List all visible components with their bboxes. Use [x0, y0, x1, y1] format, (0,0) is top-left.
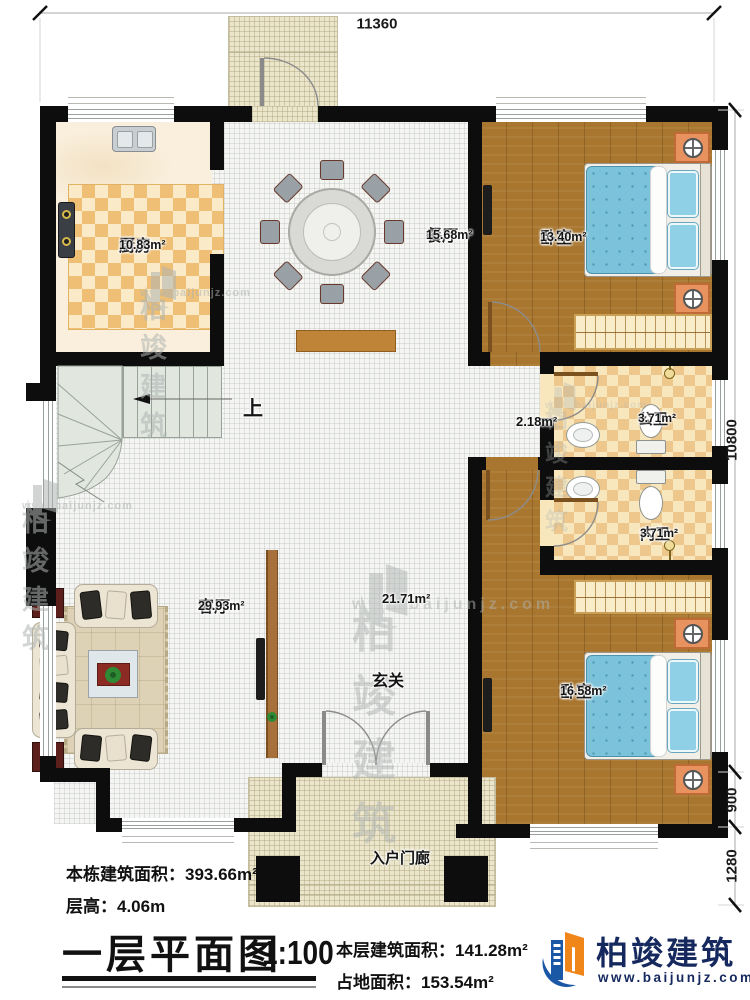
dimension-right-mid: 900 [724, 787, 741, 812]
dimension-right-main: 10800 [724, 419, 741, 461]
brand-logo-icon [536, 928, 590, 988]
title-underline [62, 976, 316, 981]
brand-logo: 柏竣建筑 www.baijunjz.com [536, 926, 736, 992]
total-building-area: 本栋建筑面积：393.66m² [66, 860, 258, 885]
title-underline-thin [62, 986, 316, 988]
brand-website: www.baijunjz.com [598, 970, 750, 985]
plan-title: 一层平面图 [62, 922, 282, 980]
floor-height: 层高：4.06m [66, 892, 165, 917]
dimension-right-bottom: 1280 [724, 849, 741, 882]
plan-scale: 1:100 [262, 934, 334, 972]
footprint-area: 占地面积：153.54m² [336, 968, 494, 993]
floor-area: 本层建筑面积：141.28m² [336, 936, 528, 961]
brand-name: 柏竣建筑 [596, 928, 736, 974]
floor-plan: 柏竣建筑www.baijunjz.com 柏竣建筑www.baijunjz.co… [0, 0, 750, 1000]
dimension-top: 11360 [357, 16, 398, 33]
